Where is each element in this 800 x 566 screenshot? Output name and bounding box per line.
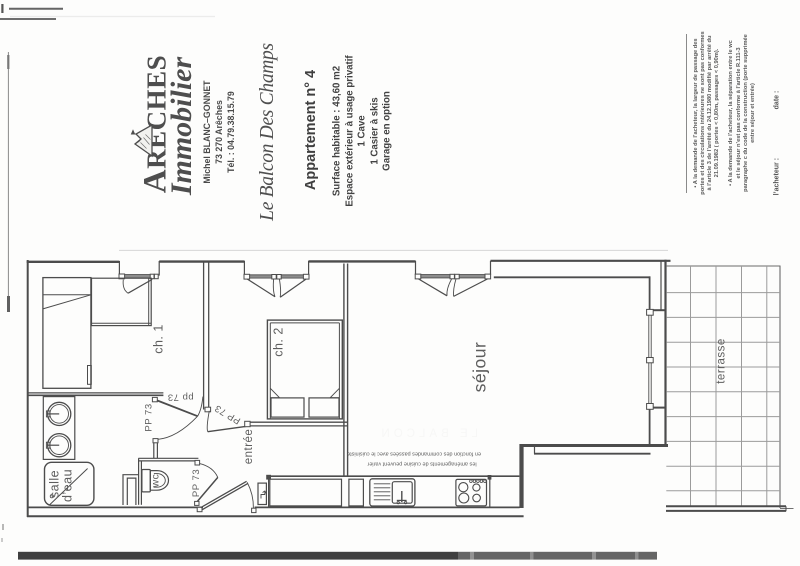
- svg-text:en fonction des commandes pass: en fonction des commandes passées avec l…: [347, 451, 481, 457]
- svg-text:ch. 2: ch. 2: [272, 327, 286, 357]
- svg-text:ch. 1: ch. 1: [152, 324, 166, 354]
- svg-text:LE BALCON: LE BALCON: [377, 428, 478, 440]
- svg-text:les aménagements de cuisine pe: les aménagements de cuisine peuvent vari…: [367, 461, 476, 467]
- svg-text:terrasse: terrasse: [716, 338, 728, 384]
- svg-text:entrée: entrée: [243, 429, 255, 465]
- svg-text:PP 73: PP 73: [213, 402, 243, 426]
- svg-text:wc: wc: [150, 474, 162, 489]
- svg-text:PP 73: PP 73: [191, 469, 202, 497]
- svg-text:d’eau: d’eau: [60, 469, 74, 502]
- svg-text:pp 73: pp 73: [167, 391, 193, 402]
- svg-text:PP 73: PP 73: [144, 403, 155, 431]
- svg-text:séjour: séjour: [470, 342, 490, 393]
